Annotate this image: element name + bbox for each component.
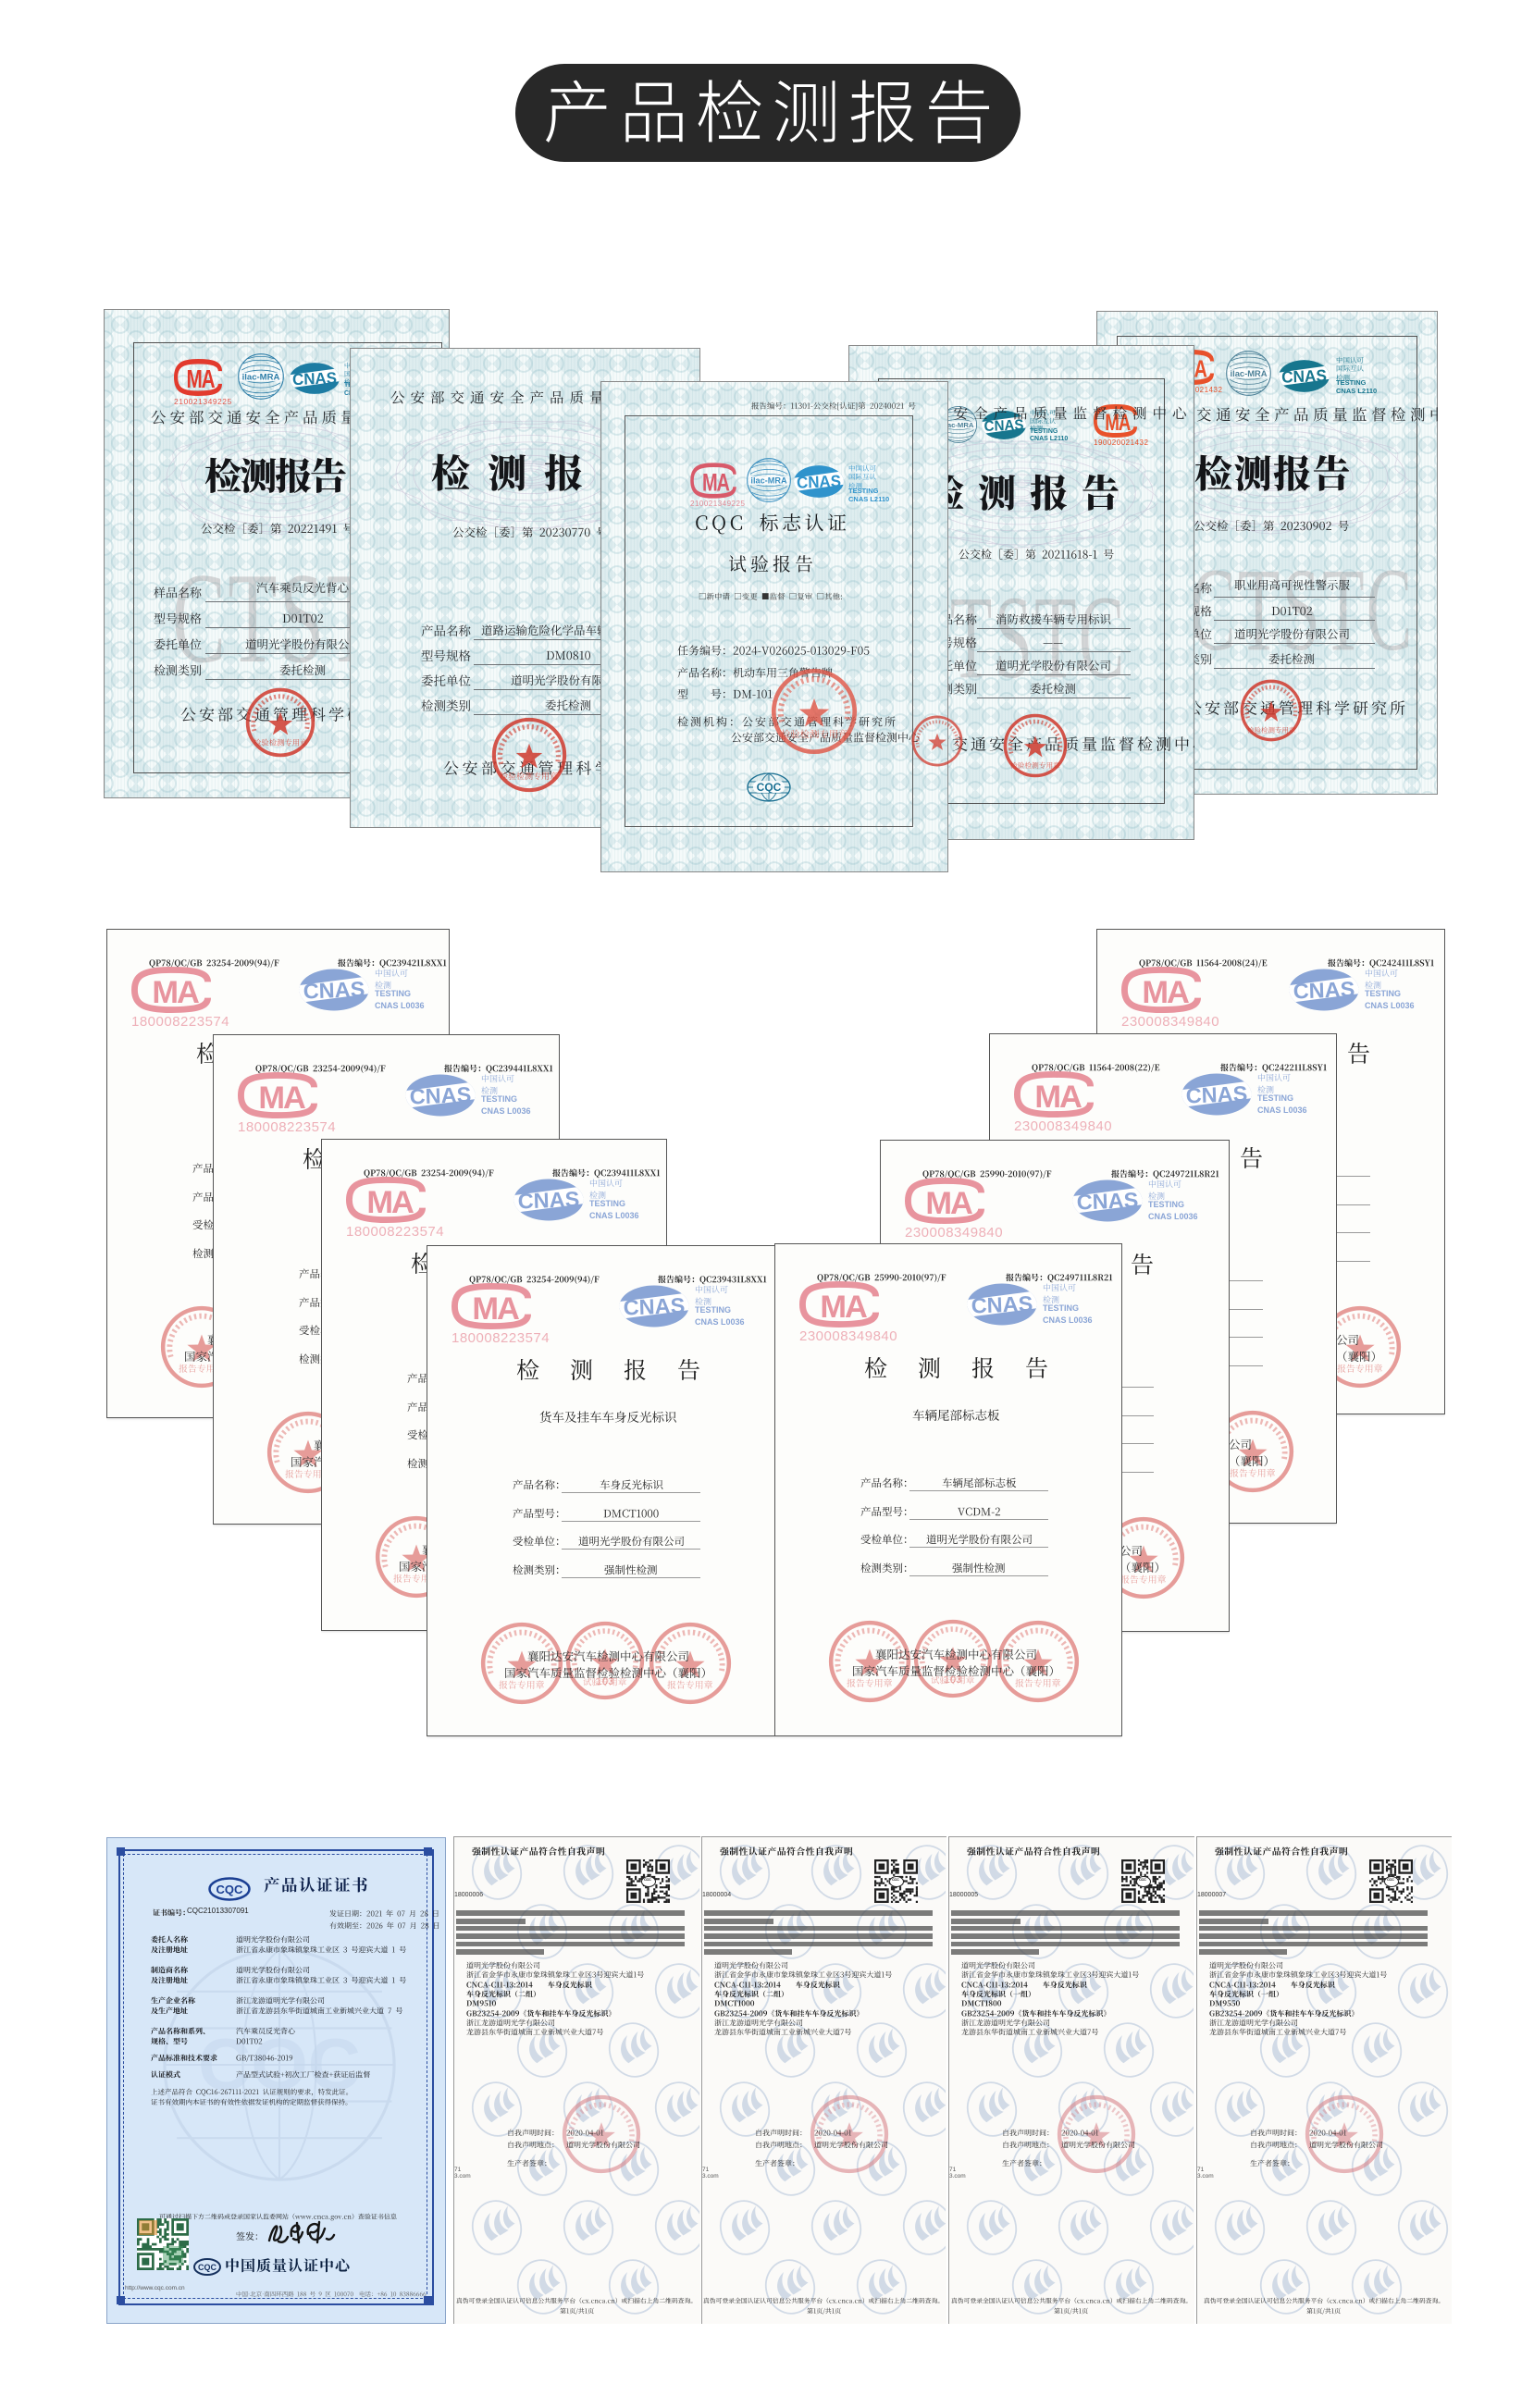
svg-text:ilac-MRA: ilac-MRA (1231, 369, 1268, 378)
svg-text:A: A (283, 1081, 306, 1116)
svg-text:M: M (472, 1291, 499, 1327)
svg-text:A: A (1194, 355, 1208, 382)
svg-text:M: M (366, 1185, 393, 1220)
svg-text:CNAS: CNAS (292, 369, 337, 389)
svg-text:ilac-MRA: ilac-MRA (242, 372, 280, 382)
svg-text:A: A (1059, 1080, 1082, 1115)
svg-text:A: A (202, 365, 216, 393)
svg-text:M: M (702, 470, 718, 498)
svg-text:A: A (845, 1290, 868, 1325)
svg-text:A: A (391, 1185, 414, 1220)
svg-text:CNAS: CNAS (797, 472, 841, 492)
svg-text:CQC: CQC (757, 781, 782, 794)
svg-text:CNAS: CNAS (517, 1187, 579, 1213)
svg-text:CQC: CQC (198, 2263, 217, 2272)
svg-text:M: M (1034, 1080, 1061, 1115)
svg-text:M: M (925, 1186, 952, 1221)
svg-text:CNAS: CNAS (1076, 1188, 1138, 1214)
svg-text:A: A (1167, 975, 1190, 1010)
svg-text:A: A (950, 1186, 973, 1221)
svg-text:M: M (258, 1081, 285, 1116)
svg-text:A: A (177, 975, 200, 1010)
svg-text:M: M (152, 975, 179, 1010)
svg-text:A: A (717, 470, 730, 498)
svg-text:CQC: CQC (216, 1883, 244, 1896)
svg-text:CNAS: CNAS (303, 977, 365, 1003)
svg-text:ilac-MRA: ilac-MRA (750, 475, 787, 485)
svg-text:M: M (187, 365, 203, 393)
svg-text:CNAS: CNAS (409, 1082, 471, 1108)
svg-text:CNAS: CNAS (1281, 366, 1327, 387)
svg-text:CNAS: CNAS (1185, 1081, 1247, 1107)
svg-text:M: M (1142, 975, 1169, 1010)
svg-text:A: A (497, 1291, 520, 1327)
svg-text:CNAS: CNAS (1293, 977, 1355, 1003)
svg-text:M: M (820, 1290, 847, 1325)
svg-text:CNAS: CNAS (971, 1291, 1033, 1317)
svg-text:CNAS: CNAS (623, 1293, 685, 1319)
